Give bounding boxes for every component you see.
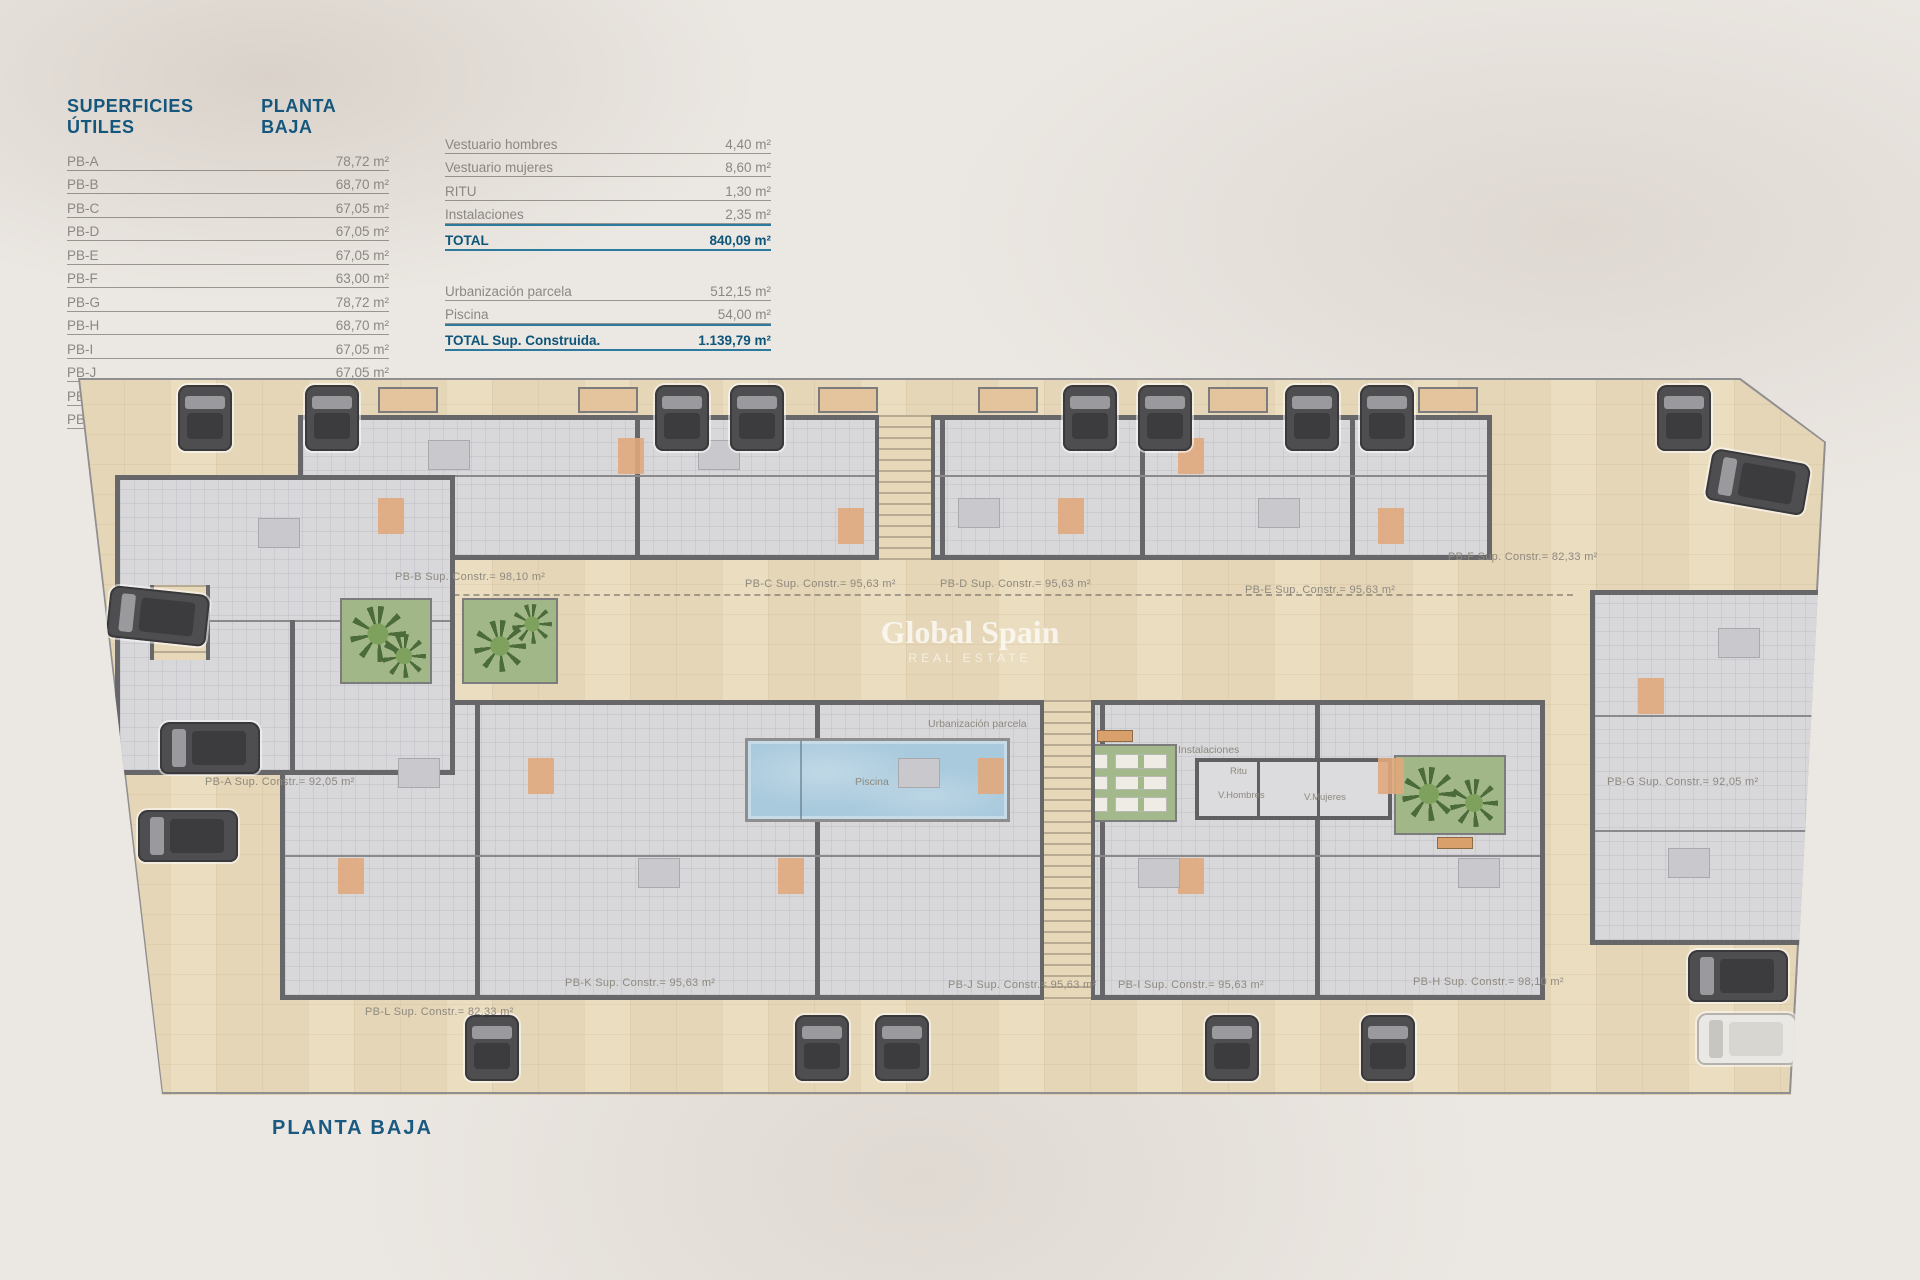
table-row: PB-F 63,00 m² (67, 265, 389, 289)
garden (340, 598, 432, 684)
total-row: TOTAL 840,09 m² (445, 224, 771, 251)
row-label: PB-B (67, 177, 99, 192)
total-label: TOTAL (445, 233, 489, 248)
table-row: Urbanización parcela 512,15 m² (445, 277, 771, 301)
row-label: PB-C (67, 201, 99, 216)
v-mujeres-label: V.Mujeres (1304, 792, 1346, 803)
table-row: PB-D 67,05 m² (67, 218, 389, 242)
row-label: Vestuario hombres (445, 137, 558, 152)
unit-label-pb-f: PB-F Sup. Constr.= 82,33 m² (1448, 551, 1598, 563)
car-icon (160, 722, 260, 774)
row-label: Urbanización parcela (445, 284, 572, 299)
row-value: 67,05 m² (336, 201, 389, 216)
row-label: Vestuario mujeres (445, 160, 553, 175)
sunbed-icon (1115, 797, 1167, 812)
palm-tree-icon (512, 604, 552, 644)
total-value: 1.139,79 m² (698, 333, 771, 348)
table-row: Instalaciones 2,35 m² (445, 201, 771, 225)
unit-label-pb-i: PB-I Sup. Constr.= 95,63 m² (1118, 979, 1264, 991)
row-value: 512,15 m² (710, 284, 771, 299)
row-value: 2,35 m² (725, 207, 771, 222)
unit-label-pb-l: PB-L Sup. Constr.= 82,33 m² (365, 1006, 514, 1018)
furniture (618, 438, 644, 474)
wall (1315, 705, 1320, 995)
wall (1350, 420, 1355, 555)
furniture (838, 508, 864, 544)
patio (978, 387, 1038, 413)
car-icon (1697, 1013, 1797, 1065)
patio (818, 387, 878, 413)
car-icon (1361, 1015, 1415, 1081)
wall (1595, 715, 1818, 717)
furniture (428, 440, 470, 470)
stairs-icon (1040, 700, 1095, 1000)
car-icon (1205, 1015, 1259, 1081)
car-icon (795, 1015, 849, 1081)
superficies-header: SUPERFICIES ÚTILES PLANTA BAJA (67, 96, 389, 138)
page: SUPERFICIES ÚTILES PLANTA BAJA PB-A 78,7… (0, 0, 1920, 1280)
unit-label-pb-b: PB-B Sup. Constr.= 98,10 m² (395, 571, 545, 583)
patio (1418, 387, 1478, 413)
unit-label-pb-a: PB-A Sup. Constr.= 92,05 m² (205, 776, 355, 788)
furniture (638, 858, 680, 888)
furniture (398, 758, 440, 788)
car-icon (178, 385, 232, 451)
table-row: PB-H 68,70 m² (67, 312, 389, 336)
furniture (528, 758, 554, 794)
resumen-rows-b: Urbanización parcela 512,15 m² Piscina 5… (445, 277, 771, 324)
unit-label-pb-g: PB-G Sup. Constr.= 92,05 m² (1607, 776, 1758, 788)
ritu-label: Ritu (1230, 766, 1247, 777)
row-label: PB-D (67, 224, 99, 239)
urbanizacion-label: Urbanización parcela (928, 718, 1027, 730)
watermark-tagline: REAL ESTATE (860, 651, 1080, 665)
furniture (338, 858, 364, 894)
instalaciones-block (1195, 758, 1392, 820)
bench (1437, 837, 1473, 849)
table-row: PB-C 67,05 m² (67, 194, 389, 218)
palm-tree-icon (1450, 779, 1498, 827)
superficies-subtitle: PLANTA BAJA (261, 96, 389, 138)
garden (1394, 755, 1506, 835)
table-row: Vestuario mujeres 8,60 m² (445, 154, 771, 178)
plan-title: PLANTA BAJA (272, 1117, 433, 1140)
row-value: 78,72 m² (336, 295, 389, 310)
wall (1317, 762, 1320, 816)
wall (940, 420, 945, 555)
floor-plan: Urbanización parcela Piscina Instalacion… (78, 378, 1828, 1095)
instalaciones-label: Instalaciones (1178, 744, 1239, 756)
furniture (1718, 628, 1760, 658)
garden (462, 598, 558, 684)
row-label: PB-A (67, 154, 99, 169)
car-icon (1285, 385, 1339, 451)
total-constructed-row: TOTAL Sup. Construida. 1.139,79 m² (445, 324, 771, 351)
row-label: PB-G (67, 295, 100, 310)
resumen-rows-a: Vestuario hombres 4,40 m² Vestuario muje… (445, 130, 771, 224)
car-icon (1360, 385, 1414, 451)
row-label: PB-I (67, 342, 93, 357)
row-value: 67,05 m² (336, 224, 389, 239)
unit-label-pb-c: PB-C Sup. Constr.= 95,63 m² (745, 578, 896, 590)
total-value: 840,09 m² (709, 233, 771, 248)
row-label: RITU (445, 184, 477, 199)
row-value: 1,30 m² (725, 184, 771, 199)
unit-label-pb-e: PB-E Sup. Constr.= 95,63 m² (1245, 584, 1395, 596)
palm-tree-icon (382, 634, 426, 678)
row-label: PB-E (67, 248, 99, 263)
wall (285, 855, 1540, 857)
v-hombres-label: V.Hombres (1218, 790, 1265, 801)
furniture (258, 518, 300, 548)
palm-tree-icon (1402, 767, 1456, 821)
furniture (1258, 498, 1300, 528)
car-icon (1657, 385, 1711, 451)
stairs-icon (875, 415, 935, 560)
car-icon (1704, 448, 1812, 517)
watermark: Global Spain REAL ESTATE (860, 616, 1080, 665)
row-value: 68,70 m² (336, 177, 389, 192)
table-row: Vestuario hombres 4,40 m² (445, 130, 771, 154)
furniture (1378, 758, 1404, 794)
car-icon (1138, 385, 1192, 451)
car-icon (465, 1015, 519, 1081)
superficies-title: SUPERFICIES ÚTILES (67, 96, 261, 138)
row-label: Piscina (445, 307, 489, 322)
watermark-brand: Global Spain (860, 616, 1080, 648)
car-icon (138, 810, 238, 862)
furniture (1638, 678, 1664, 714)
table-row: PB-I 67,05 m² (67, 335, 389, 359)
wall (290, 620, 295, 770)
furniture (1058, 498, 1084, 534)
table-row: PB-A 78,72 m² (67, 147, 389, 171)
wall (1257, 762, 1260, 816)
table-row: RITU 1,30 m² (445, 177, 771, 201)
car-icon (1688, 950, 1788, 1002)
unit-label-pb-d: PB-D Sup. Constr.= 95,63 m² (940, 578, 1091, 590)
furniture (1378, 508, 1404, 544)
row-label: PB-J (67, 365, 96, 380)
row-value: 68,70 m² (336, 318, 389, 333)
bench (1097, 730, 1133, 742)
pool-lane (800, 741, 802, 819)
car-icon (655, 385, 709, 451)
row-value: 54,00 m² (718, 307, 771, 322)
furniture (378, 498, 404, 534)
row-value: 8,60 m² (725, 160, 771, 175)
piscina-label: Piscina (855, 776, 889, 788)
row-value: 63,00 m² (336, 271, 389, 286)
furniture (1458, 858, 1500, 888)
car-icon (1063, 385, 1117, 451)
row-value: 67,05 m² (336, 248, 389, 263)
table-row: PB-E 67,05 m² (67, 241, 389, 265)
car-icon (305, 385, 359, 451)
wall (475, 705, 480, 995)
row-label: PB-H (67, 318, 99, 333)
sunbed-icon (1115, 754, 1167, 769)
row-value: 78,72 m² (336, 154, 389, 169)
row-label: PB-F (67, 271, 98, 286)
furniture (978, 758, 1004, 794)
table-row: Piscina 54,00 m² (445, 301, 771, 325)
wall (1595, 830, 1818, 832)
unit-label-pb-k: PB-K Sup. Constr.= 95,63 m² (565, 977, 715, 989)
patio (378, 387, 438, 413)
table-row: PB-B 68,70 m² (67, 171, 389, 195)
furniture (1178, 858, 1204, 894)
sunbed-icon (1115, 776, 1167, 791)
row-value: 67,05 m² (336, 342, 389, 357)
table-row: PB-G 78,72 m² (67, 288, 389, 312)
resumen-table: Vestuario hombres 4,40 m² Vestuario muje… (445, 130, 771, 351)
furniture (958, 498, 1000, 528)
row-value: 67,05 m² (336, 365, 389, 380)
furniture (1138, 858, 1180, 888)
unit-label-pb-j: PB-J Sup. Constr.= 95,63 m² (948, 979, 1096, 991)
patio (1208, 387, 1268, 413)
row-label: Instalaciones (445, 207, 524, 222)
furniture (898, 758, 940, 788)
furniture (778, 858, 804, 894)
building-pb-g (1590, 590, 1823, 945)
furniture (1668, 848, 1710, 878)
car-icon (106, 585, 211, 647)
car-icon (875, 1015, 929, 1081)
car-icon (730, 385, 784, 451)
total-label: TOTAL Sup. Construida. (445, 333, 600, 348)
unit-label-pb-h: PB-H Sup. Constr.= 98,10 m² (1413, 976, 1564, 988)
row-value: 4,40 m² (725, 137, 771, 152)
patio (578, 387, 638, 413)
